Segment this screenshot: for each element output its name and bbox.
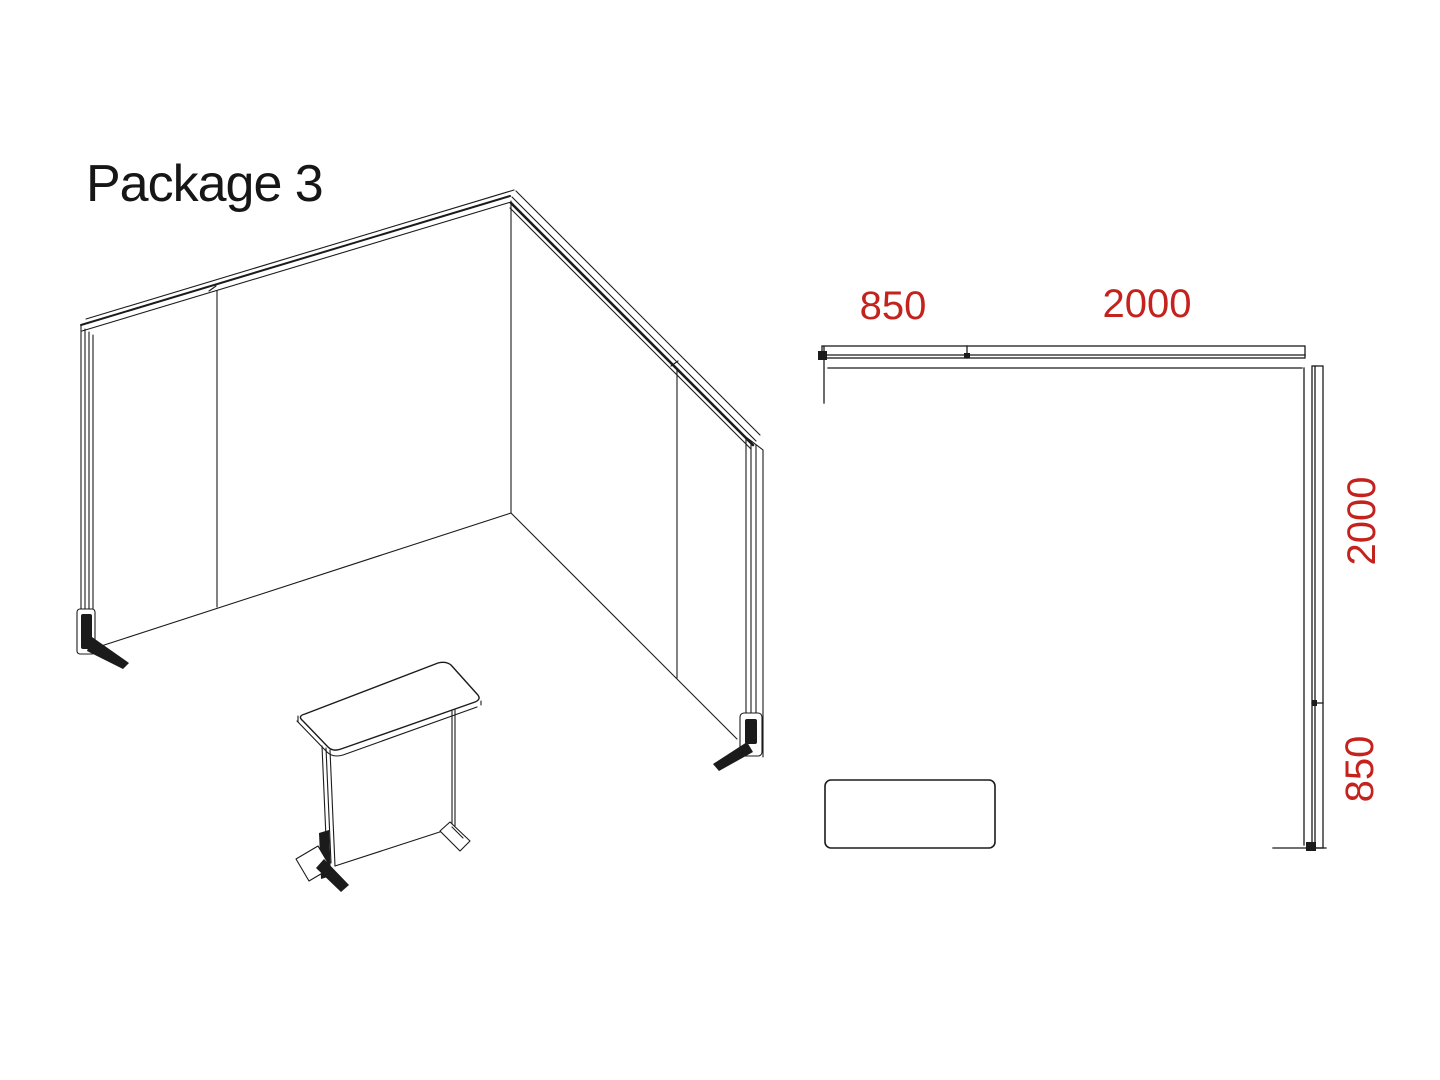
drawing-canvas: Package 3 — [0, 0, 1440, 1080]
right-wall-end-post — [746, 437, 763, 757]
plan-right-wall — [1273, 366, 1326, 851]
right-wall-bottom-edge — [511, 513, 737, 739]
iso-right-wall — [510, 191, 763, 771]
left-wall-bottom-edge — [95, 513, 511, 648]
plan-view — [818, 346, 1326, 851]
table-right-foot — [440, 822, 470, 851]
plan-top-wall — [818, 346, 1305, 403]
iso-left-wall — [77, 190, 514, 669]
left-wall-top-cap — [81, 190, 514, 331]
iso-counter-table — [296, 662, 481, 892]
dimension-label-right-850: 850 — [1338, 689, 1382, 849]
dimension-label-right-2000: 2000 — [1340, 441, 1384, 601]
iso-view — [77, 190, 763, 892]
plan-top-wall-end-foot — [818, 351, 827, 360]
left-wall-end-post — [81, 325, 93, 648]
dimension-label-top-850: 850 — [818, 284, 968, 328]
dimension-label-top-2000: 2000 — [1072, 282, 1222, 326]
table-top — [297, 662, 481, 756]
plan-right-wall-end-foot — [1306, 842, 1316, 851]
right-wall-top-cap — [510, 191, 760, 449]
table-left-foot — [296, 846, 349, 892]
plan-table-outline — [825, 780, 995, 848]
line-art — [0, 0, 1440, 1080]
